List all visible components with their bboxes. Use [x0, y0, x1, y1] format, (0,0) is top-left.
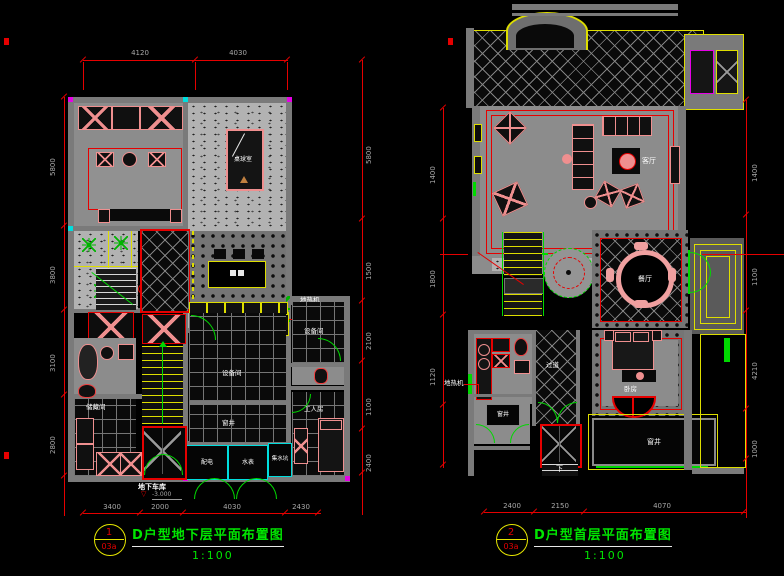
room-label-living: 客厅 — [642, 158, 656, 165]
wall-segment — [466, 28, 474, 108]
dim-line — [83, 513, 321, 514]
dim-line — [83, 60, 288, 61]
dim-text: 4210 — [752, 344, 759, 380]
sump-room: 集水坑 — [268, 443, 292, 477]
speaker — [98, 209, 110, 223]
window-accent — [68, 97, 73, 102]
dim-text: 1500 — [366, 244, 373, 280]
dim-text: 5800 — [50, 140, 57, 176]
heater-label: 地热机 — [444, 380, 464, 387]
dim-text: 2100 — [366, 314, 373, 350]
dim-ext — [287, 62, 288, 90]
dim-text: 4030 — [212, 504, 252, 511]
staircase — [504, 294, 542, 316]
level-underline — [152, 499, 182, 500]
dim-text: 1100 — [366, 380, 373, 416]
dim-line — [484, 512, 746, 513]
cabinet — [78, 106, 112, 130]
coffee-table — [619, 153, 636, 170]
pillow — [633, 332, 649, 342]
room-label-equipment: 设备间 — [304, 328, 324, 335]
dim-extension — [440, 254, 468, 255]
cellar-floor — [140, 229, 190, 313]
armchair — [96, 152, 114, 167]
dim-text: 2000 — [142, 504, 178, 511]
cad-canvas: 桌球室 地热机 设备间 — [0, 0, 784, 576]
window-accent — [68, 226, 73, 231]
dim-text: 1000 — [752, 422, 759, 458]
power-room: 配电 — [186, 445, 228, 480]
window-symbol — [474, 156, 482, 174]
window-accent — [287, 97, 292, 102]
mahjong-table — [208, 261, 266, 288]
speaker — [170, 209, 182, 223]
dim-ext — [195, 62, 196, 90]
shelf — [76, 444, 94, 470]
wall-segment — [344, 296, 350, 482]
water-meter-room: 水表 — [228, 445, 268, 480]
dim-line — [362, 60, 363, 515]
dim-text: 4070 — [642, 503, 682, 510]
bubble-divider — [95, 539, 124, 540]
sheet-code: 03a — [496, 541, 526, 551]
staircase — [504, 232, 542, 276]
dining-chair — [606, 268, 614, 282]
appliance — [492, 338, 510, 352]
cabinet — [140, 106, 183, 130]
window-accent — [345, 476, 350, 481]
crate — [120, 452, 142, 476]
room-label-pool: 桌球室 — [227, 156, 259, 164]
chair — [233, 249, 245, 259]
leader-line — [478, 384, 479, 394]
toilet — [78, 384, 96, 398]
sheet-number: 1 — [94, 526, 124, 538]
bubble-divider — [497, 539, 526, 540]
toilet — [514, 338, 528, 356]
round-feature-center — [566, 270, 571, 275]
corner-detail — [690, 50, 714, 94]
stair-rail — [502, 232, 503, 316]
room-label-dining: 餐厅 — [638, 276, 652, 283]
table-detail — [230, 270, 236, 276]
stair-rail — [162, 346, 163, 424]
sink — [514, 360, 530, 374]
well-table: 窗井 — [486, 404, 520, 426]
side-table — [584, 196, 597, 209]
wall-segment — [286, 97, 292, 305]
stair-landing — [504, 278, 544, 294]
balcony-band — [512, 13, 678, 16]
drawing-scale: 1:100 — [192, 549, 234, 562]
plant — [82, 238, 96, 252]
sheet-number: 2 — [496, 526, 526, 538]
chair — [214, 249, 226, 259]
sofa — [572, 124, 594, 190]
bathtub — [78, 344, 98, 380]
wall-line — [189, 231, 190, 309]
window-well-room — [189, 405, 286, 443]
cushion — [562, 154, 572, 164]
room-label-bedroom: 卧房 — [624, 386, 637, 393]
round-chair — [122, 152, 137, 167]
sink — [100, 346, 114, 360]
plant — [114, 236, 128, 250]
pillow — [320, 420, 342, 430]
dim-text: 4120 — [120, 50, 160, 57]
room-label-window-well: 窗井 — [497, 412, 509, 418]
dim-text: 2400 — [494, 503, 530, 510]
equipment-pad — [142, 314, 186, 344]
dim-text: 1120 — [430, 350, 437, 386]
shaft-line — [559, 426, 560, 462]
window-dash — [192, 231, 194, 309]
wall-segment — [286, 386, 344, 390]
pillow — [615, 332, 631, 342]
stair-arrowhead — [159, 341, 167, 347]
stove-burner — [478, 358, 490, 370]
dim-text: 4030 — [218, 50, 258, 57]
dim-extension — [702, 254, 784, 255]
dim-text: 1100 — [752, 250, 759, 286]
dim-line — [443, 108, 444, 468]
rug-detail — [636, 372, 644, 380]
dim-text: 3800 — [50, 248, 57, 284]
chair — [252, 249, 264, 259]
table-detail — [238, 270, 244, 276]
room-label-storage: 储藏间 — [86, 404, 106, 411]
dining-chair — [634, 242, 648, 250]
leader-line — [464, 384, 478, 385]
window-symbol — [474, 124, 482, 142]
drawing-scale: 1:100 — [584, 549, 626, 562]
shelf — [76, 418, 94, 444]
room-label-equipment: 设备间 — [222, 370, 242, 377]
dim-text: 3100 — [50, 336, 57, 372]
dim-text: 3400 — [92, 504, 132, 511]
registration-mark — [4, 452, 9, 459]
balcony-band — [512, 4, 678, 10]
nightstand — [652, 330, 662, 341]
wardrobe — [294, 428, 308, 464]
media-cabinet — [98, 209, 180, 221]
dim-ext — [83, 62, 84, 90]
washer — [118, 344, 134, 360]
sofa — [602, 116, 652, 136]
door-leaf — [688, 250, 690, 294]
dim-text: 2430 — [284, 504, 318, 511]
outer-wall-line — [700, 334, 746, 468]
shaft — [540, 424, 582, 468]
window-symbol — [473, 182, 476, 196]
room-label-worker: 工人房 — [304, 406, 324, 413]
dim-text: 1800 — [430, 252, 437, 288]
planter-line — [74, 266, 138, 267]
down-label: 下 — [556, 466, 563, 473]
dining-chair — [668, 268, 676, 282]
dim-text: 5800 — [366, 128, 373, 164]
level-triangle-icon: ▽ — [141, 491, 146, 498]
dim-text: 2400 — [366, 436, 373, 472]
wall-segment — [692, 468, 744, 474]
dim-text: 1400 — [430, 148, 437, 184]
dim-text: 2150 — [542, 503, 578, 510]
fireplace — [670, 146, 680, 184]
registration-mark — [4, 38, 9, 45]
garage-level: -3.000 — [152, 492, 171, 498]
appliance — [492, 354, 510, 368]
window-accent — [183, 97, 188, 102]
stove-burner — [478, 344, 490, 356]
drawing-title: D户型地下层平面布置图 — [132, 524, 284, 547]
window-symbol — [724, 338, 730, 362]
nightstand — [604, 330, 614, 341]
cabinet — [112, 106, 140, 130]
pool-marker — [240, 176, 248, 183]
sheet-code: 03a — [94, 541, 124, 551]
dim-text: 2800 — [50, 418, 57, 454]
room-label-window-well: 窗井 — [222, 420, 235, 427]
drawing-title: D户型首层平面布置图 — [534, 524, 672, 547]
wall-segment — [474, 394, 534, 397]
armchair — [148, 152, 166, 167]
corner-detail — [716, 50, 738, 94]
arch-inner — [516, 24, 574, 48]
window-well-bottom: 窗井 — [592, 418, 716, 466]
dining-chair — [634, 300, 648, 308]
toilet — [314, 368, 328, 384]
wall-segment — [684, 330, 692, 470]
room-label-window-well: 窗井 — [647, 439, 661, 446]
wall-segment — [474, 446, 530, 450]
dim-text: 1400 — [752, 146, 759, 182]
room-label-hall: 过道 — [546, 362, 559, 369]
registration-mark — [448, 38, 453, 45]
